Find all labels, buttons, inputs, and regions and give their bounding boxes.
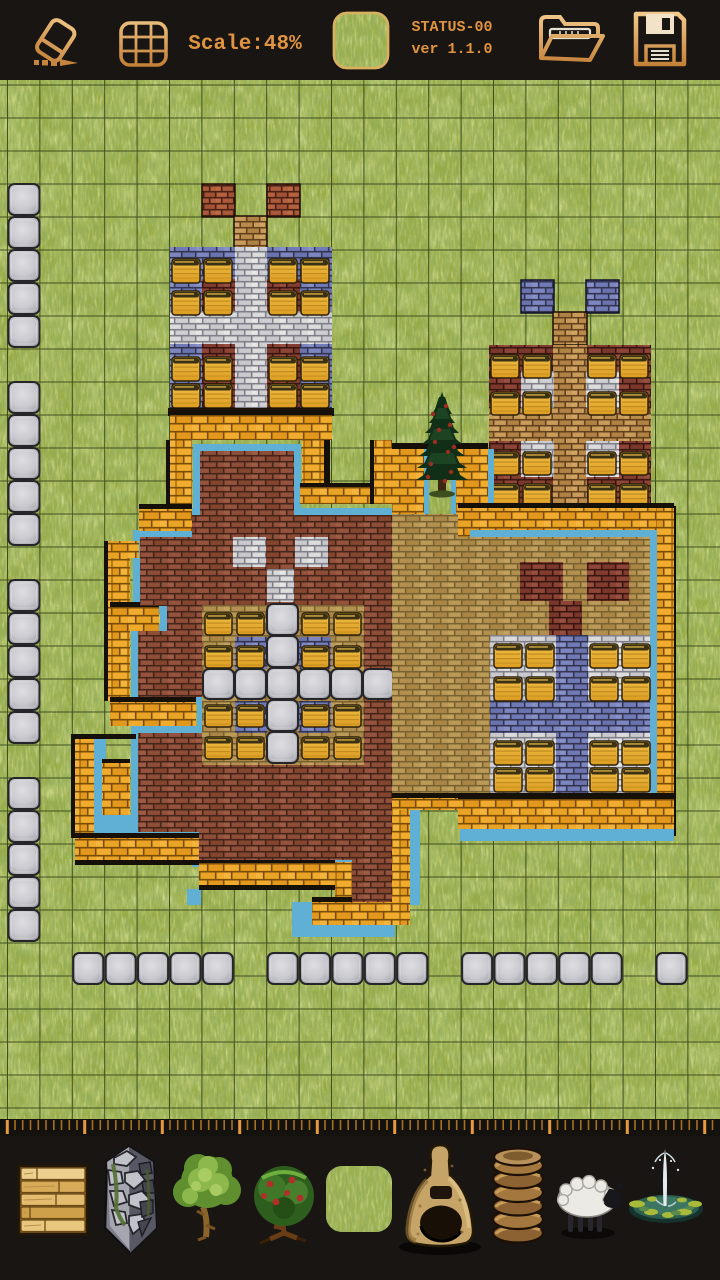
svg-text:STATUS-00: STATUS-00 <box>411 19 492 36</box>
svg-text:ver 1.1.0: ver 1.1.0 <box>411 41 492 58</box>
svg-text:Scale:48%: Scale:48% <box>188 33 302 56</box>
